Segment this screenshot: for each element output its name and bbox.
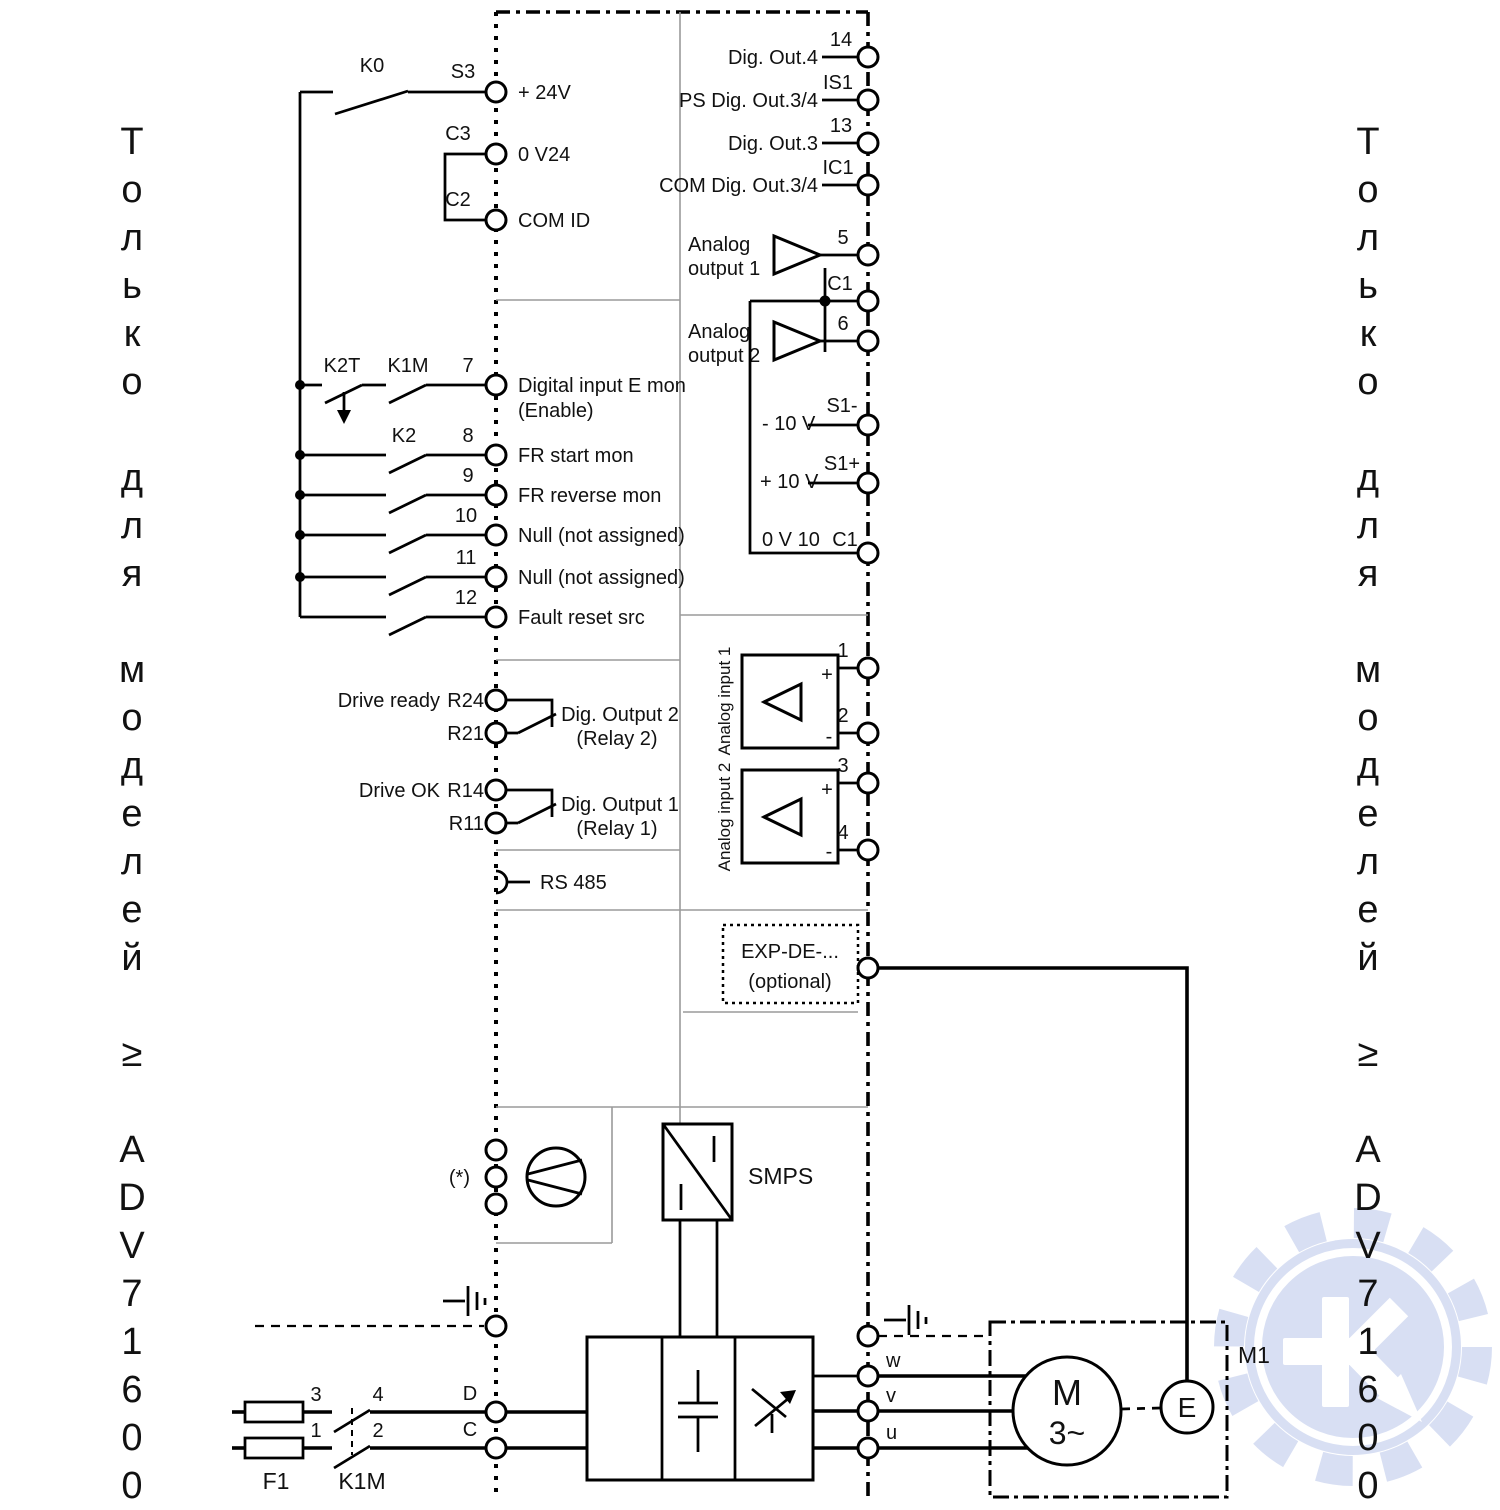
input-12-label: Fault reset src (518, 607, 645, 629)
k2-label: K2 (392, 425, 416, 447)
terminal-4-number: 4 (837, 822, 848, 844)
rs485-label: RS 485 (540, 872, 607, 894)
dig-output-1-label: Dig. Output 1 (561, 794, 679, 816)
input-10-label: Null (not assigned) (518, 525, 685, 547)
ground-symbol-left (255, 1286, 506, 1336)
s1-plus-number: S1+ (824, 453, 860, 475)
digital-input-12: 12 Fault reset src (300, 587, 645, 635)
wiring-diagram: K0 S3 + 24V C3 0 V24 C2 COM ID K2T K1M 7… (0, 0, 1500, 1500)
r11-label: R11 (449, 813, 484, 835)
terminal-w (858, 1366, 878, 1386)
terminal-1-mains-number: 1 (310, 1420, 321, 1442)
fuse-icon-bottom (245, 1438, 303, 1458)
phase-u-label: u (886, 1422, 897, 1444)
smps-block: SMPS (663, 1124, 813, 1337)
motor-m-label: M (1052, 1372, 1082, 1413)
digital-output-3: Dig. Out.3 13 (728, 115, 878, 155)
ps-dig-out34-label: PS Dig. Out.3/4 (679, 90, 818, 112)
terminal-s3 (486, 82, 506, 102)
relay-output-1: Drive OK R14 R11 Dig. Output 1 (Relay 1) (359, 780, 679, 840)
smps-label: SMPS (748, 1163, 813, 1189)
terminal-11-number: 11 (456, 547, 477, 569)
digital-input-bus (295, 92, 305, 617)
terminal-4-mains-number: 4 (372, 1384, 383, 1406)
analog-input2-plus: + (821, 779, 833, 801)
relay-1-label: (Relay 1) (576, 818, 657, 840)
terminal-ic1 (858, 175, 878, 195)
input-11-label: Null (not assigned) (518, 567, 685, 589)
k2t-label: K2T (324, 355, 361, 377)
analog-input-2: Analog input 2 + 3 - 4 (715, 755, 878, 871)
s3-label: S3 (451, 61, 475, 83)
terminal-3-number: 3 (837, 755, 848, 777)
terminal-c2 (486, 210, 506, 230)
m1-tag-label: M1 (1238, 1342, 1270, 1368)
digital-output-4: Dig. Out.4 14 (728, 29, 878, 69)
rs485-port: RS 485 (496, 871, 607, 894)
mains-input: 3 4 D 1 2 C F1 K1M (232, 1383, 587, 1494)
relay-output-2: Drive ready R24 R21 Dig. Output 2 (Relay… (338, 690, 679, 750)
terminal-13 (858, 133, 878, 153)
analog-input2-minus: - (826, 841, 833, 863)
k1m-label: K1M (338, 1468, 385, 1494)
input-9-label: FR reverse mon (518, 485, 661, 507)
plus24-label: + 24V (518, 82, 571, 104)
encoder-e-label: E (1178, 1392, 1197, 1423)
zerov24-label: 0 V24 (518, 144, 570, 166)
drive-ok-label: Drive OK (359, 780, 441, 802)
terminal-3-mains-number: 3 (310, 1384, 321, 1406)
analog-output1-label-1: Analog (688, 234, 750, 256)
power-block (587, 1337, 813, 1480)
dig-out4-label: Dig. Out.4 (728, 47, 818, 69)
terminal-exp (858, 958, 878, 978)
input-7-label2: (Enable) (518, 400, 594, 422)
side-note-left: Т о л ь к о д л я м о д е л е й ≥ A D V … (100, 118, 164, 1510)
zerov10-label: 0 V 10 (762, 529, 820, 551)
terminal-c3 (486, 144, 506, 164)
terminal-8 (486, 445, 506, 465)
terminal-is1-number: IS1 (823, 72, 853, 94)
minus10v-label: - 10 V (762, 413, 816, 435)
terminal-c1-top (858, 291, 878, 311)
terminal-2-number: 2 (837, 705, 848, 727)
terminal-d-label: D (463, 1383, 477, 1405)
output-phases: w v u (813, 1350, 1028, 1458)
digital-input-10: 10 Null (not assigned) (300, 505, 685, 553)
s1-minus-number: S1- (826, 395, 857, 417)
analog-input1-minus: - (826, 726, 833, 748)
terminal-8-number: 8 (462, 425, 473, 447)
terminal-pe-right (858, 1326, 878, 1346)
f1-label: F1 (263, 1468, 290, 1494)
phase-v-label: v (886, 1385, 896, 1407)
analog-input-1: Analog input 1 + 1 - 2 (715, 640, 878, 755)
terminal-14-number: 14 (830, 29, 852, 51)
terminal-5-number: 5 (837, 227, 848, 249)
k1m-contact-label: K1M (387, 355, 428, 377)
terminal-r14 (486, 780, 506, 800)
terminal-4 (858, 840, 878, 860)
terminal-c1-bottom-number: C1 (832, 529, 858, 551)
amplifier-2-icon (774, 322, 820, 360)
fan-section: (*) (449, 1140, 585, 1214)
terminal-3 (858, 773, 878, 793)
terminal-9-number: 9 (462, 465, 473, 487)
terminal-9 (486, 485, 506, 505)
terminal-s1-minus (858, 415, 878, 435)
terminal-11 (486, 567, 506, 587)
terminal-1 (858, 658, 878, 678)
star-note-label: (*) (449, 1167, 470, 1189)
r24-label: R24 (447, 690, 484, 712)
amplifier-1-icon (774, 236, 820, 274)
drive-ready-label: Drive ready (338, 690, 440, 712)
analog-input1-label: Analog input 1 (715, 647, 734, 756)
phase-w-label: w (885, 1350, 901, 1372)
terminal-5 (858, 245, 878, 265)
terminal-c-mains-label: C (463, 1419, 477, 1441)
terminal-s1-plus (858, 473, 878, 493)
analog-output-2: Analog output 2 6 (688, 313, 878, 367)
terminal-13-number: 13 (830, 115, 852, 137)
terminal-v (858, 1401, 878, 1421)
terminal-fan-1 (486, 1140, 506, 1160)
comid-label: COM ID (518, 210, 590, 232)
terminal-u (858, 1438, 878, 1458)
terminal-fan-2 (486, 1167, 506, 1187)
r21-label: R21 (447, 723, 484, 745)
terminal-2-mains-number: 2 (372, 1420, 383, 1442)
terminal-r24 (486, 690, 506, 710)
terminal-7 (486, 375, 506, 395)
digital-input-11: 11 Null (not assigned) (300, 547, 685, 595)
input-8-label: FR start mon (518, 445, 634, 467)
terminal-r11 (486, 813, 506, 833)
motor-phases-label: 3~ (1049, 1415, 1085, 1451)
terminal-1-number: 1 (837, 640, 848, 662)
c2-label: C2 (445, 189, 471, 211)
digital-input-7: K2T K1M 7 Digital input E mon (Enable) (300, 355, 686, 424)
com-dig-out34-label: COM Dig. Out.3/4 (659, 175, 818, 197)
terminal-7-number: 7 (462, 355, 473, 377)
motor-group: M1 M 3~ E (990, 1322, 1270, 1497)
input-7-label: Digital input E mon (518, 375, 686, 397)
terminal-is1 (858, 90, 878, 110)
fuse-icon-top (245, 1402, 303, 1422)
terminal-6-number: 6 (837, 313, 848, 335)
terminal-12 (486, 607, 506, 627)
terminal-10-number: 10 (455, 505, 477, 527)
inverter-igbt-icon (752, 1389, 796, 1433)
ps-dig-out34: PS Dig. Out.3/4 IS1 (679, 72, 878, 112)
terminal-c1-top-number: C1 (827, 273, 853, 295)
terminal-6 (858, 331, 878, 351)
terminal-2 (858, 723, 878, 743)
r14-label: R14 (447, 780, 484, 802)
terminal-c1-bottom (858, 543, 878, 563)
relay-2-label: (Relay 2) (576, 728, 657, 750)
drive-boundary (496, 12, 868, 1500)
k0-label: K0 (360, 55, 384, 77)
terminal-pe-left (486, 1316, 506, 1336)
analog-output2-label-1: Analog (688, 321, 750, 343)
digital-input-9: 9 FR reverse mon (300, 465, 661, 513)
analog-input2-label: Analog input 2 (715, 763, 734, 872)
expansion-card: EXP-DE-... (optional) (723, 925, 1187, 1381)
supply-section: K0 S3 + 24V C3 0 V24 C2 COM ID (300, 55, 590, 232)
analog-input1-plus: + (821, 664, 833, 686)
com-dig-out34: COM Dig. Out.3/4 IC1 (659, 157, 878, 197)
dig-output-2-label: Dig. Output 2 (561, 704, 679, 726)
terminal-10 (486, 525, 506, 545)
terminal-r21 (486, 723, 506, 743)
terminal-fan-3 (486, 1194, 506, 1214)
terminal-12-number: 12 (455, 587, 477, 609)
exp-optional-label: (optional) (748, 971, 831, 993)
analog-output1-label-2: output 1 (688, 258, 760, 280)
terminal-c-mains (486, 1438, 506, 1458)
exp-de-label: EXP-DE-... (741, 941, 839, 963)
terminal-14 (858, 47, 878, 67)
fan-icon (527, 1148, 585, 1206)
terminal-ic1-number: IC1 (822, 157, 853, 179)
dig-out3-label: Dig. Out.3 (728, 133, 818, 155)
ground-symbol-right (858, 1305, 990, 1346)
side-note-right: Т о л ь к о д л я м о д е л е й ≥ A D V … (1336, 118, 1400, 1510)
terminal-d (486, 1402, 506, 1422)
c3-label: C3 (445, 123, 471, 145)
dc-bus-capacitor-icon (678, 1370, 718, 1452)
